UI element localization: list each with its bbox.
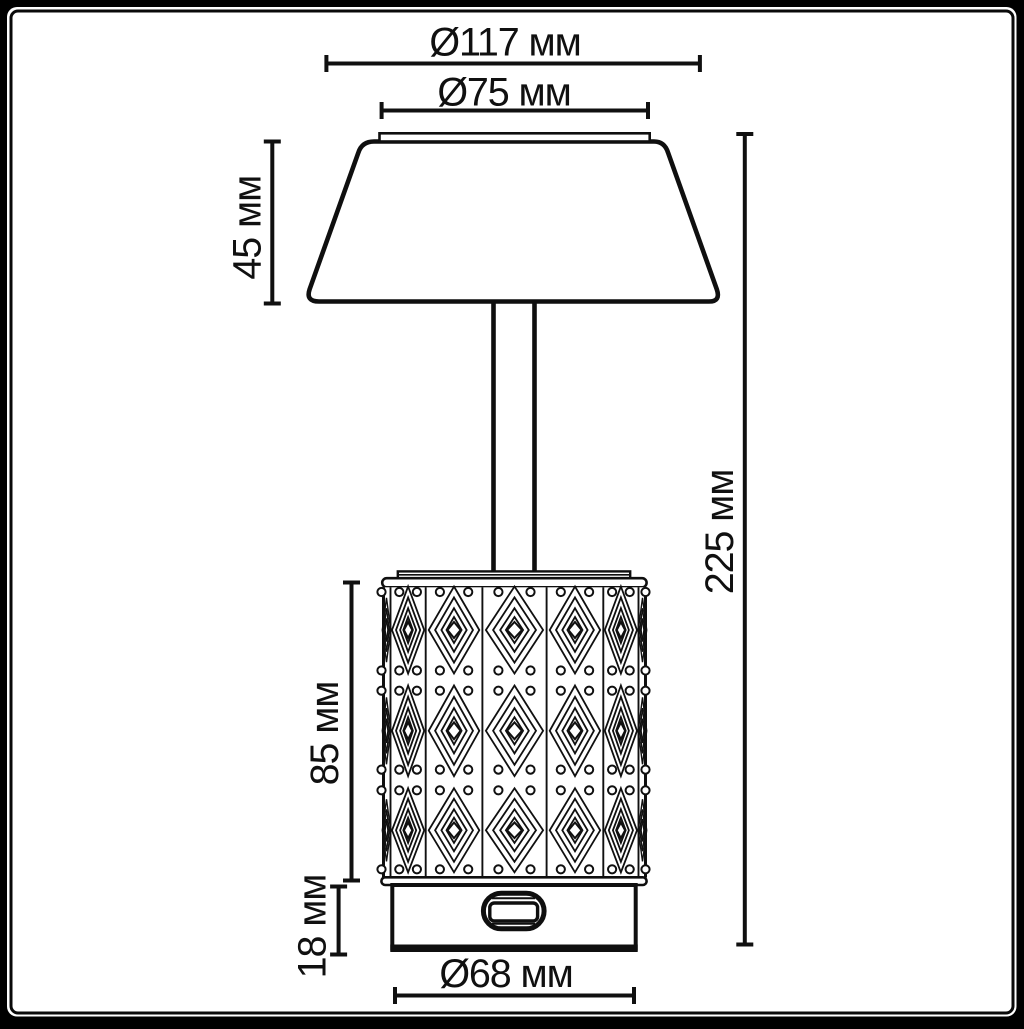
svg-text:225 мм: 225 мм — [698, 470, 742, 595]
svg-text:18 мм: 18 мм — [291, 875, 335, 979]
svg-text:85 мм: 85 мм — [303, 682, 347, 786]
svg-text:45 мм: 45 мм — [226, 176, 270, 280]
svg-text:Ø68 мм: Ø68 мм — [439, 952, 572, 996]
svg-text:Ø75 мм: Ø75 мм — [437, 71, 570, 115]
svg-text:Ø117 мм: Ø117 мм — [429, 21, 580, 65]
